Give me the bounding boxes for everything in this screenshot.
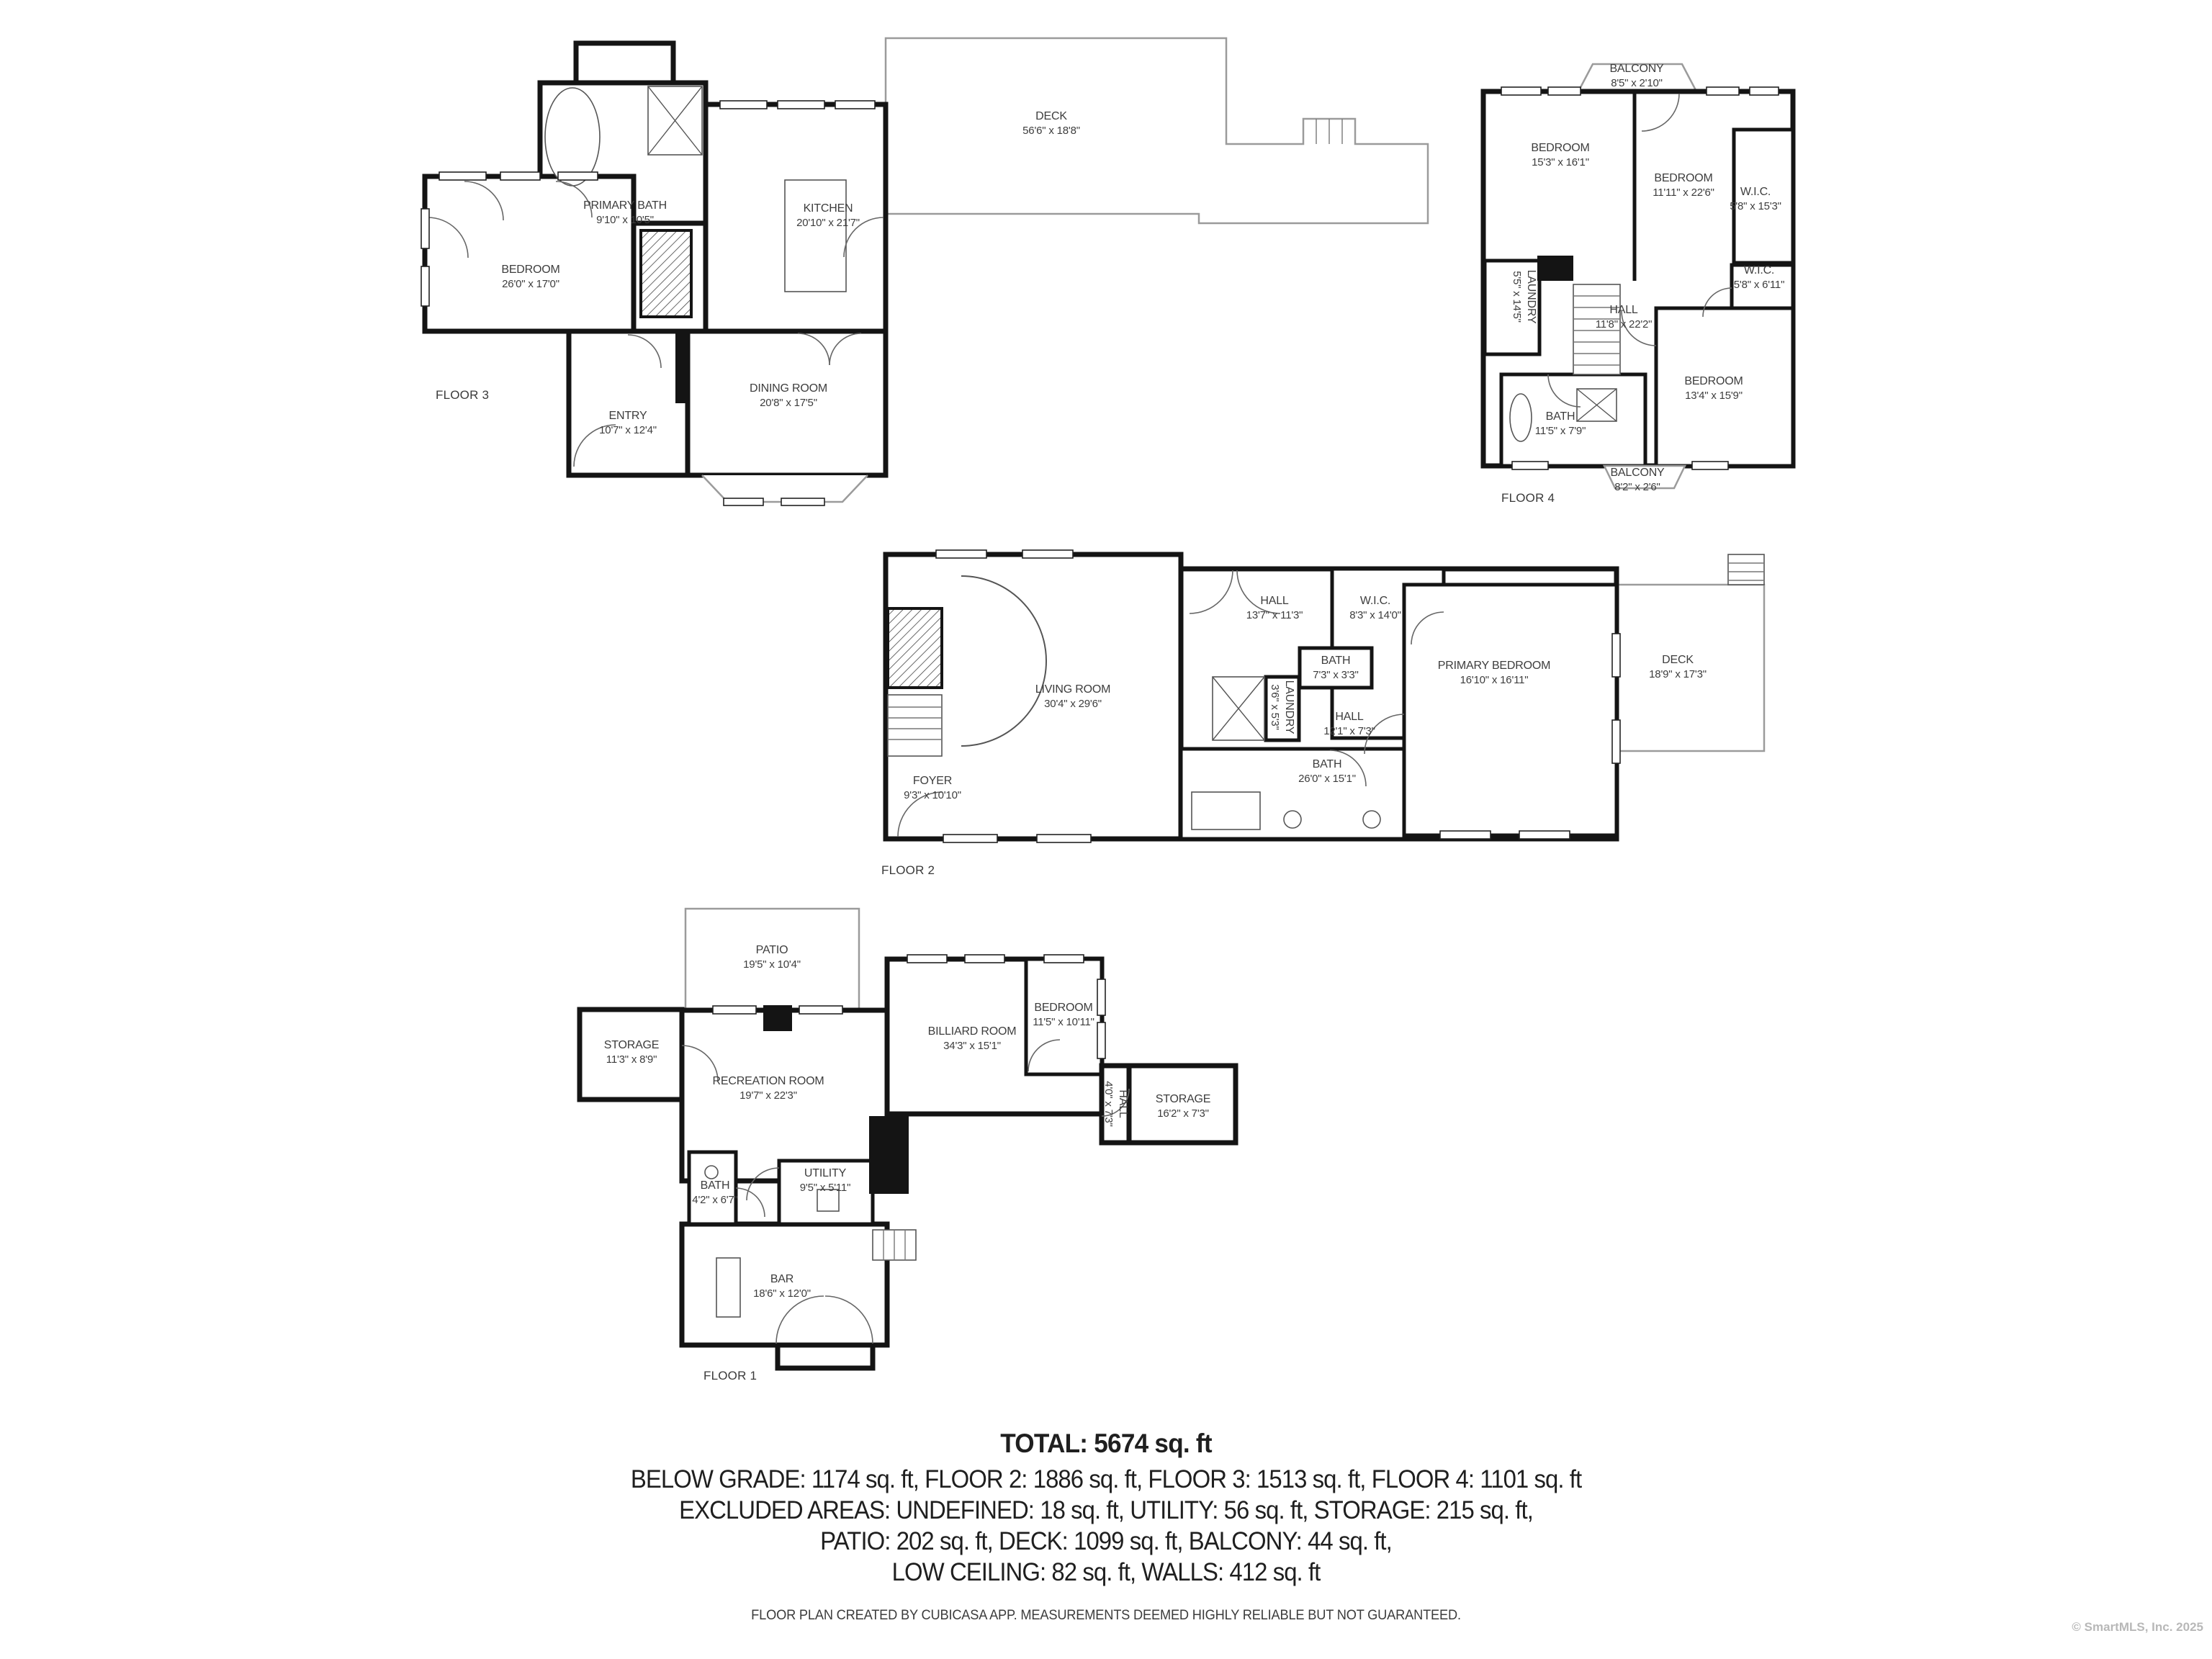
room-name: DECK	[1022, 109, 1080, 124]
room-label-bath: BATH 7'3" x 3'3"	[1313, 654, 1358, 683]
room-label-wic: W.I.C. 8'3" x 14'0"	[1349, 594, 1401, 623]
room-dims: 56'6" x 18'8"	[1022, 125, 1080, 138]
room-dims: 5'8" x 6'11"	[1734, 279, 1784, 292]
room-label-balcony: BALCONY 8'2" x 2'6"	[1610, 466, 1664, 495]
room-label-hall: HALL 12'1" x 7'3"	[1323, 710, 1375, 739]
room-name: LAUNDRY	[1281, 680, 1295, 734]
floor-3-walls	[421, 38, 1428, 505]
room-label-bedroom: BEDROOM 11'5" x 10'11"	[1033, 1001, 1094, 1030]
room-name: W.I.C.	[1349, 594, 1401, 608]
room-dims: 12'1" x 7'3"	[1323, 725, 1375, 739]
room-dims: 13'4" x 15'9"	[1684, 390, 1743, 403]
room-label-bar: BAR 18'6" x 12'0"	[753, 1272, 811, 1301]
room-dims: 15'3" x 16'1"	[1531, 156, 1589, 170]
room-name: BAR	[753, 1272, 811, 1287]
room-label-laundry: LAUNDRY 5'5" x 14'5"	[1509, 270, 1538, 324]
room-label-hall: HALL 13'7" x 11'3"	[1246, 594, 1303, 623]
room-label-utility: UTILITY 9'5" x 5'11"	[800, 1166, 850, 1195]
room-name: FOYER	[904, 774, 961, 788]
room-dims: 11'5" x 10'11"	[1033, 1016, 1094, 1030]
room-name: RECREATION ROOM	[713, 1074, 824, 1089]
room-name: ENTRY	[599, 409, 657, 423]
room-dims: 16'10" x 16'11"	[1438, 674, 1550, 688]
room-name: BEDROOM	[501, 263, 559, 277]
summary-line: EXCLUDED AREAS: UNDEFINED: 18 sq. ft, UT…	[66, 1495, 2146, 1526]
room-dims: 5'8" x 15'3"	[1730, 200, 1781, 214]
room-name: BATH	[1535, 410, 1586, 424]
summary-line: BELOW GRADE: 1174 sq. ft, FLOOR 2: 1886 …	[66, 1464, 2146, 1495]
room-dims: 19'7" x 22'3"	[713, 1089, 824, 1103]
room-dims: 18'9" x 17'3"	[1649, 668, 1707, 682]
room-label-foyer: FOYER 9'3" x 10'10"	[904, 774, 961, 803]
room-dims: 7'3" x 3'3"	[1313, 669, 1358, 683]
room-label-balcony: BALCONY 8'5" x 2'10"	[1609, 62, 1663, 91]
copyright-text: © SmartMLS, Inc. 2025	[2072, 1620, 2203, 1635]
room-name: DINING ROOM	[750, 382, 827, 396]
room-name: BATH	[692, 1179, 737, 1193]
room-label-primary-bath: PRIMARY BATH 9'10" x 10'5"	[583, 199, 667, 228]
room-label-dining-room: DINING ROOM 20'8" x 17'5"	[750, 382, 827, 410]
room-label-deck: DECK 56'6" x 18'8"	[1022, 109, 1080, 138]
room-name: BEDROOM	[1531, 141, 1589, 156]
room-name: UTILITY	[800, 1166, 850, 1181]
floor-3-label: FLOOR 3	[436, 388, 489, 403]
floorplan-drawing	[0, 0, 2212, 1659]
room-name: BEDROOM	[1033, 1001, 1094, 1015]
room-name: W.I.C.	[1730, 185, 1781, 199]
room-name: BALCONY	[1609, 62, 1663, 76]
room-dims: 30'4" x 29'6"	[1035, 698, 1110, 711]
room-label-storage: STORAGE 11'3" x 8'9"	[604, 1038, 660, 1067]
room-dims: 26'0" x 15'1"	[1298, 773, 1356, 786]
room-dims: 26'0" x 17'0"	[501, 278, 559, 292]
room-dims: 4'0" x 7'3"	[1101, 1081, 1115, 1126]
room-label-deck: DECK 18'9" x 17'3"	[1649, 653, 1707, 682]
room-dims: 4'2" x 6'7"	[692, 1194, 737, 1208]
room-label-bath: BATH 26'0" x 15'1"	[1298, 757, 1356, 786]
floor-4-label: FLOOR 4	[1501, 491, 1555, 505]
room-name: PRIMARY BATH	[583, 199, 667, 213]
room-label-recreation-room: RECREATION ROOM 19'7" x 22'3"	[713, 1074, 824, 1103]
room-name: PRIMARY BEDROOM	[1438, 659, 1550, 673]
room-label-wic: W.I.C. 5'8" x 6'11"	[1734, 264, 1784, 292]
room-dims: 8'2" x 2'6"	[1610, 481, 1664, 495]
room-dims: 11'5" x 7'9"	[1535, 425, 1586, 439]
room-dims: 10'7" x 12'4"	[599, 424, 657, 438]
room-dims: 8'5" x 2'10"	[1609, 77, 1663, 91]
room-label-bath: BATH 11'5" x 7'9"	[1535, 410, 1586, 439]
room-dims: 16'2" x 7'3"	[1156, 1107, 1211, 1121]
area-summary: TOTAL: 5674 sq. ft BELOW GRADE: 1174 sq.…	[0, 1429, 2212, 1588]
summary-line: PATIO: 202 sq. ft, DECK: 1099 sq. ft, BA…	[66, 1526, 2146, 1557]
room-name: BATH	[1298, 757, 1356, 772]
room-name: STORAGE	[604, 1038, 660, 1053]
room-dims: 9'10" x 10'5"	[583, 214, 667, 228]
room-dims: 9'5" x 5'11"	[800, 1182, 850, 1195]
room-label-bedroom: BEDROOM 11'11" x 22'6"	[1653, 171, 1714, 200]
room-dims: 34'3" x 15'1"	[928, 1040, 1017, 1053]
room-dims: 3'6" x 5'3"	[1267, 680, 1281, 734]
room-label-living-room: LIVING ROOM 30'4" x 29'6"	[1035, 683, 1110, 711]
room-dims: 9'3" x 10'10"	[904, 789, 961, 803]
room-name: LAUNDRY	[1523, 270, 1537, 324]
floor-2-label: FLOOR 2	[881, 863, 935, 878]
room-name: BATH	[1313, 654, 1358, 668]
room-dims: 20'8" x 17'5"	[750, 397, 827, 410]
room-dims: 11'8" x 22'2"	[1596, 318, 1653, 332]
room-name: BEDROOM	[1653, 171, 1714, 186]
floor-1-label: FLOOR 1	[703, 1369, 757, 1383]
room-label-billiard-room: BILLIARD ROOM 34'3" x 15'1"	[928, 1025, 1017, 1053]
room-label-storage: STORAGE 16'2" x 7'3"	[1156, 1092, 1211, 1121]
room-label-bedroom: BEDROOM 15'3" x 16'1"	[1531, 141, 1589, 170]
room-name: HALL	[1323, 710, 1375, 724]
room-dims: 19'5" x 10'4"	[743, 958, 801, 972]
room-name: DECK	[1649, 653, 1707, 667]
room-label-hall: HALL 11'8" x 22'2"	[1596, 303, 1653, 332]
room-name: KITCHEN	[796, 202, 860, 216]
room-name: BILLIARD ROOM	[928, 1025, 1017, 1039]
room-dims: 18'6" x 12'0"	[753, 1287, 811, 1301]
room-name: HALL	[1115, 1081, 1129, 1126]
floor-2-walls	[886, 550, 1764, 842]
room-dims: 11'3" x 8'9"	[604, 1053, 660, 1067]
room-label-kitchen: KITCHEN 20'10" x 21'7"	[796, 202, 860, 230]
room-label-wic: W.I.C. 5'8" x 15'3"	[1730, 185, 1781, 214]
room-name: HALL	[1596, 303, 1653, 318]
room-name: HALL	[1246, 594, 1303, 608]
room-label-patio: PATIO 19'5" x 10'4"	[743, 943, 801, 972]
room-name: BEDROOM	[1684, 374, 1743, 389]
summary-line: LOW CEILING: 82 sq. ft, WALLS: 412 sq. f…	[66, 1557, 2146, 1588]
room-label-laundry: LAUNDRY 3'6" x 5'3"	[1267, 680, 1296, 734]
room-name: BALCONY	[1610, 466, 1664, 480]
room-dims: 8'3" x 14'0"	[1349, 609, 1401, 623]
room-name: W.I.C.	[1734, 264, 1784, 278]
room-label-bedroom: BEDROOM 26'0" x 17'0"	[501, 263, 559, 292]
room-name: LIVING ROOM	[1035, 683, 1110, 697]
room-dims: 13'7" x 11'3"	[1246, 609, 1303, 623]
room-dims: 20'10" x 21'7"	[796, 217, 860, 230]
room-dims: 5'5" x 14'5"	[1509, 270, 1523, 324]
floor-1-walls	[580, 909, 1236, 1368]
room-label-hall: HALL 4'0" x 7'3"	[1101, 1081, 1130, 1126]
room-label-bath: BATH 4'2" x 6'7"	[692, 1179, 737, 1208]
room-label-entry: ENTRY 10'7" x 12'4"	[599, 409, 657, 438]
room-label-bedroom: BEDROOM 13'4" x 15'9"	[1684, 374, 1743, 403]
summary-total: TOTAL: 5674 sq. ft	[55, 1429, 2157, 1459]
disclaimer-text: FLOOR PLAN CREATED BY CUBICASA APP. MEAS…	[44, 1608, 2167, 1624]
room-dims: 11'11" x 22'6"	[1653, 186, 1714, 200]
room-label-primary-bedroom: PRIMARY BEDROOM 16'10" x 16'11"	[1438, 659, 1550, 688]
room-name: PATIO	[743, 943, 801, 958]
floorplan-page: PRIMARY BATH 9'10" x 10'5" BEDROOM 26'0"…	[0, 0, 2212, 1659]
room-name: STORAGE	[1156, 1092, 1211, 1107]
